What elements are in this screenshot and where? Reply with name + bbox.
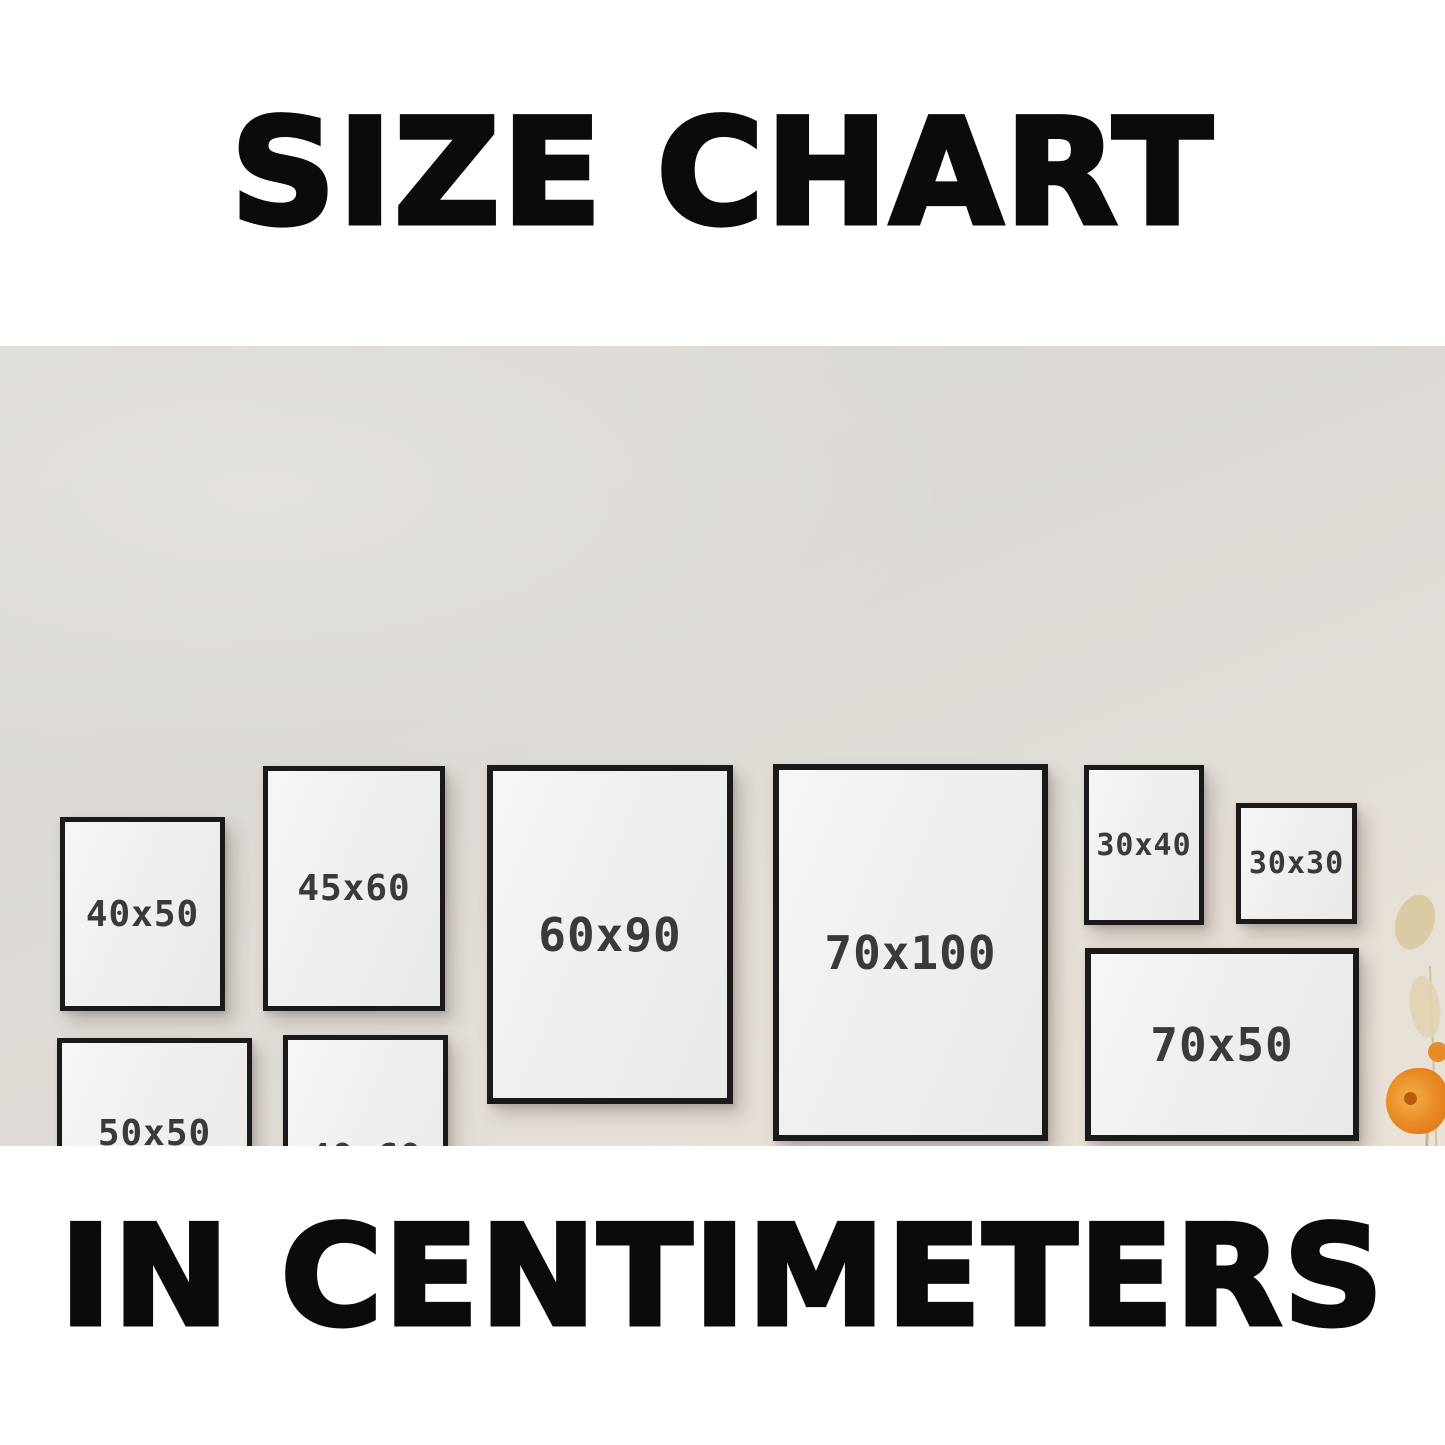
bottom-title-band: IN CENTIMETERS <box>0 1146 1445 1445</box>
size-frame-30x40: 30x40 <box>1084 765 1204 925</box>
footer-title: IN CENTIMETERS <box>60 1208 1385 1346</box>
size-frame-70x100: 70x100 <box>773 764 1048 1141</box>
orange-flower <box>1386 1068 1445 1134</box>
size-label-30x30: 30x30 <box>1249 846 1344 881</box>
size-frame-70x50: 70x50 <box>1085 948 1359 1141</box>
frames-layer: 40x5045x6060x9070x10030x4030x3050x5040x6… <box>0 346 1445 1146</box>
size-label-45x60: 45x60 <box>297 868 410 909</box>
size-frame-50x50: 50x50 <box>57 1038 252 1146</box>
orange-flower-bud <box>1428 1042 1445 1062</box>
size-frame-60x90: 60x90 <box>487 765 733 1104</box>
size-label-40x60: 40x60 <box>309 1137 422 1147</box>
size-frame-40x60: 40x60 <box>283 1035 448 1146</box>
size-label-60x90: 60x90 <box>538 908 681 962</box>
size-chart-graphic: SIZE CHART 40x5045x6060x9070x10030x4030x… <box>0 0 1445 1445</box>
page-title: SIZE CHART <box>231 100 1215 246</box>
size-label-70x50: 70x50 <box>1150 1018 1293 1072</box>
size-frame-40x50: 40x50 <box>60 817 225 1011</box>
size-label-50x50: 50x50 <box>98 1113 211 1146</box>
size-frame-45x60: 45x60 <box>263 766 445 1011</box>
size-label-30x40: 30x40 <box>1096 828 1191 863</box>
size-label-70x100: 70x100 <box>824 926 996 980</box>
size-label-40x50: 40x50 <box>86 894 199 935</box>
bedroom-wall-photo: 40x5045x6060x9070x10030x4030x3050x5040x6… <box>0 346 1445 1146</box>
size-frame-30x30: 30x30 <box>1236 803 1357 924</box>
top-title-band: SIZE CHART <box>0 0 1445 346</box>
